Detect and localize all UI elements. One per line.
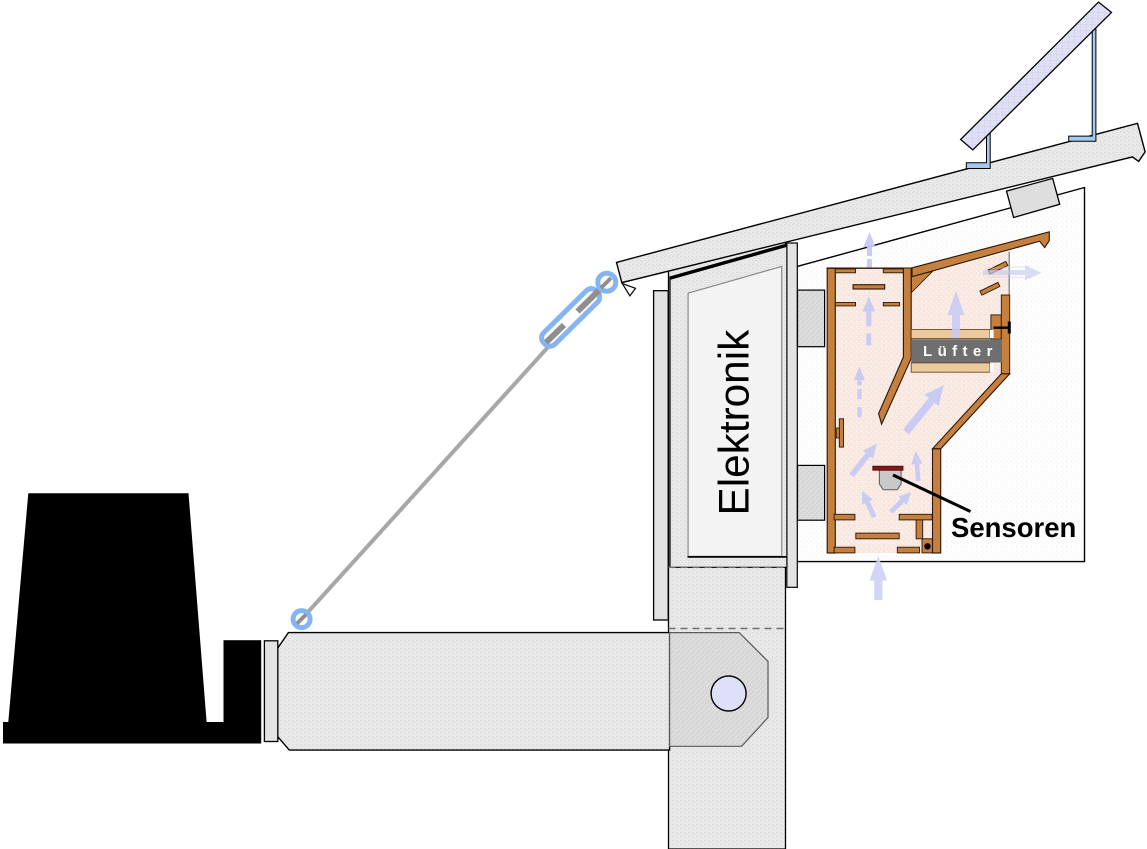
svg-text:Sensoren: Sensoren	[951, 512, 1076, 543]
svg-text:Lüfter: Lüfter	[923, 343, 998, 360]
svg-text:Elektronik: Elektronik	[711, 329, 758, 516]
